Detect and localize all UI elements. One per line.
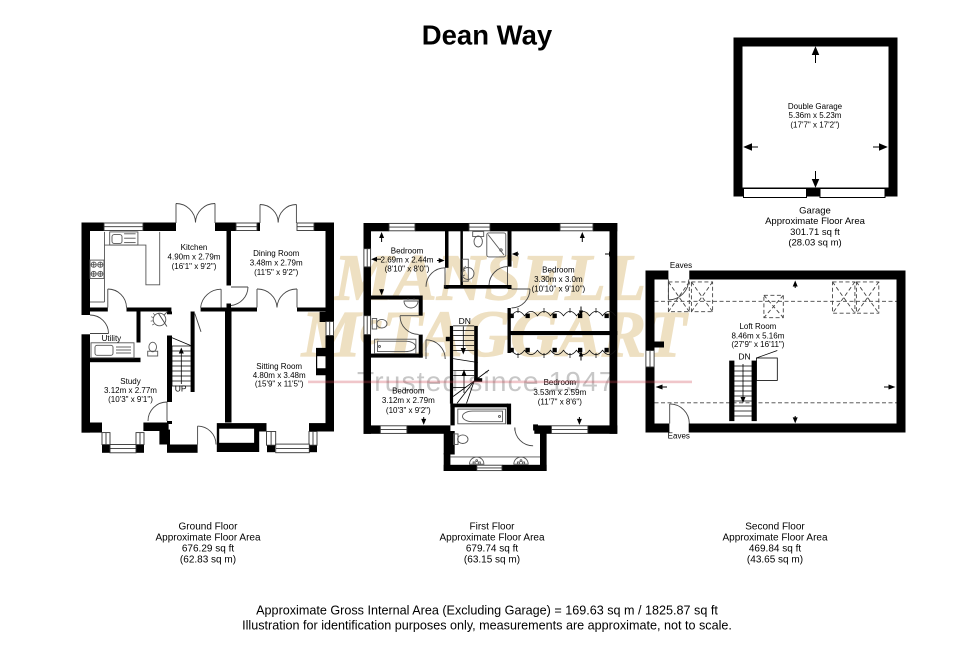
svg-text:Dining Room: Dining Room [253,249,300,258]
svg-text:Approximate Floor Area: Approximate Floor Area [439,533,544,544]
svg-text:(43.65 sq m): (43.65 sq m) [747,555,803,566]
svg-text:(15'9" x 11'5"): (15'9" x 11'5") [255,380,304,389]
svg-text:Garage: Garage [799,206,831,217]
svg-text:679.74 sq ft: 679.74 sq ft [466,544,518,555]
svg-text:(28.03 sq m): (28.03 sq m) [788,238,841,249]
svg-text:Approximate Floor Area: Approximate Floor Area [722,533,827,544]
svg-text:Illustration for identificatio: Illustration for identification purposes… [242,619,732,633]
svg-text:(11'5" x 9'2"): (11'5" x 9'2") [254,268,298,277]
svg-text:First Floor: First Floor [470,522,516,533]
svg-text:Ground Floor: Ground Floor [179,522,239,533]
svg-text:Double Garage: Double Garage [788,102,843,111]
svg-text:4.80m x 3.48m: 4.80m x 3.48m [253,371,306,380]
svg-text:Kitchen: Kitchen [181,243,208,252]
svg-text:McTAGGART: McTAGGART [301,298,689,371]
svg-text:(63.15 sq m): (63.15 sq m) [464,555,520,566]
svg-text:Bedroom: Bedroom [391,247,424,256]
svg-text:3.48m x 2.79m: 3.48m x 2.79m [250,259,303,268]
svg-text:Approximate Gross Internal Are: Approximate Gross Internal Area (Excludi… [256,604,718,618]
svg-text:(17'7" x 17'2"): (17'7" x 17'2") [790,120,840,129]
svg-text:Approximate Floor Area: Approximate Floor Area [765,216,866,227]
svg-text:3.12m x 2.79m: 3.12m x 2.79m [382,396,435,405]
svg-text:Bedroom: Bedroom [542,265,575,274]
svg-text:(62.83 sq m): (62.83 sq m) [180,555,236,566]
svg-text:676.29 sq ft: 676.29 sq ft [182,544,234,555]
svg-text:3.12m x 2.77m: 3.12m x 2.77m [104,386,157,395]
svg-text:DN: DN [738,352,750,362]
svg-text:DN: DN [459,316,471,326]
svg-text:Dean Way: Dean Way [422,20,553,51]
svg-text:5.36m x 5.23m: 5.36m x 5.23m [789,111,842,120]
svg-text:3.53m x 2.59m: 3.53m x 2.59m [533,388,586,397]
svg-text:(27'9" x 16'11"): (27'9" x 16'11") [731,340,784,349]
svg-text:301.71 sq ft: 301.71 sq ft [790,227,840,238]
svg-text:(10'3" x 9'2"): (10'3" x 9'2") [386,406,431,415]
svg-text:Eaves: Eaves [670,261,692,270]
svg-text:Loft Room: Loft Room [739,322,776,331]
svg-text:(10'3" x 9'1"): (10'3" x 9'1") [108,395,153,404]
svg-text:3.30m x 3.0m: 3.30m x 3.0m [534,275,583,284]
svg-text:Eaves: Eaves [668,432,690,441]
svg-text:(16'1" x 9'2"): (16'1" x 9'2") [172,262,217,271]
svg-text:4.90m x 2.79m: 4.90m x 2.79m [168,252,221,261]
svg-text:(8'10" x 8'0"): (8'10" x 8'0") [385,265,430,274]
svg-text:UP: UP [175,384,187,394]
svg-text:Utility: Utility [102,334,122,343]
svg-text:Study: Study [120,377,140,386]
svg-text:469.84 sq ft: 469.84 sq ft [749,544,801,555]
svg-text:Bedroom: Bedroom [392,387,425,396]
svg-text:(10'10" x 9'10"): (10'10" x 9'10") [532,285,586,294]
svg-text:2.69m x 2.44m: 2.69m x 2.44m [381,256,434,265]
svg-text:Second Floor: Second Floor [745,522,805,533]
svg-text:Approximate Floor Area: Approximate Floor Area [155,533,260,544]
svg-text:(11'7" x 8'6"): (11'7" x 8'6") [538,397,582,406]
svg-text:Sitting Room: Sitting Room [256,362,302,371]
